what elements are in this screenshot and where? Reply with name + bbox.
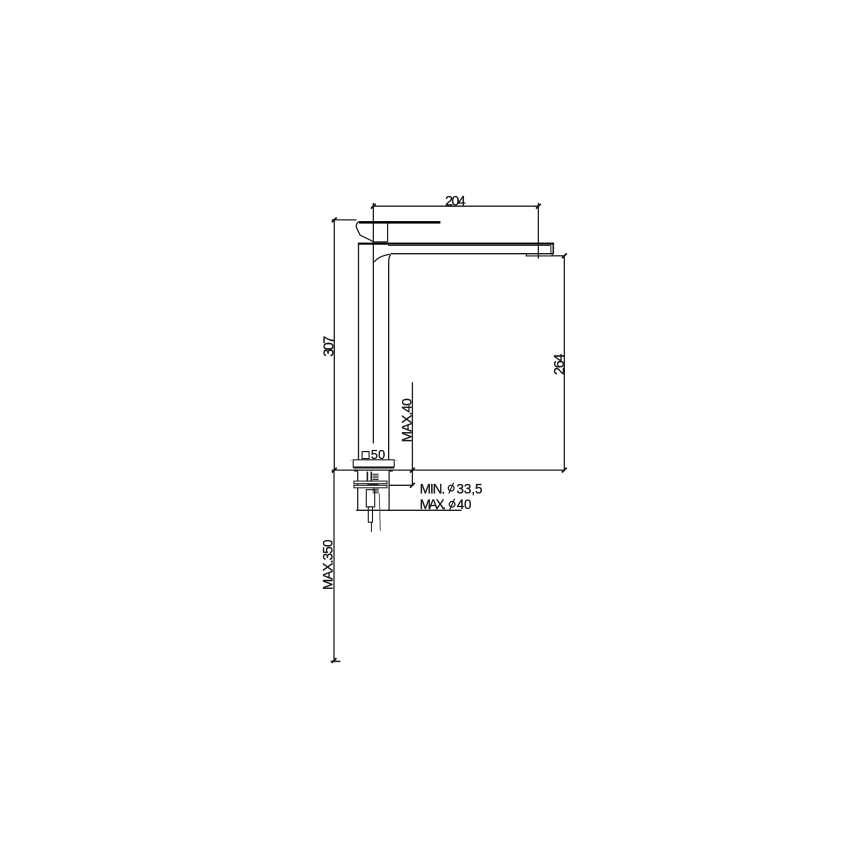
svg-text:50: 50 (371, 448, 385, 462)
svg-text:MIN.: MIN. (420, 481, 445, 496)
svg-text:264: 264 (552, 354, 568, 376)
svg-text:40: 40 (457, 497, 472, 512)
svg-text:MAX.350: MAX.350 (321, 540, 336, 591)
svg-text:MAX.40: MAX.40 (399, 398, 414, 442)
svg-text:MAX.: MAX. (420, 497, 446, 512)
svg-text:33,5: 33,5 (457, 481, 483, 496)
svg-text:307: 307 (321, 336, 337, 357)
svg-text:204: 204 (445, 193, 466, 209)
